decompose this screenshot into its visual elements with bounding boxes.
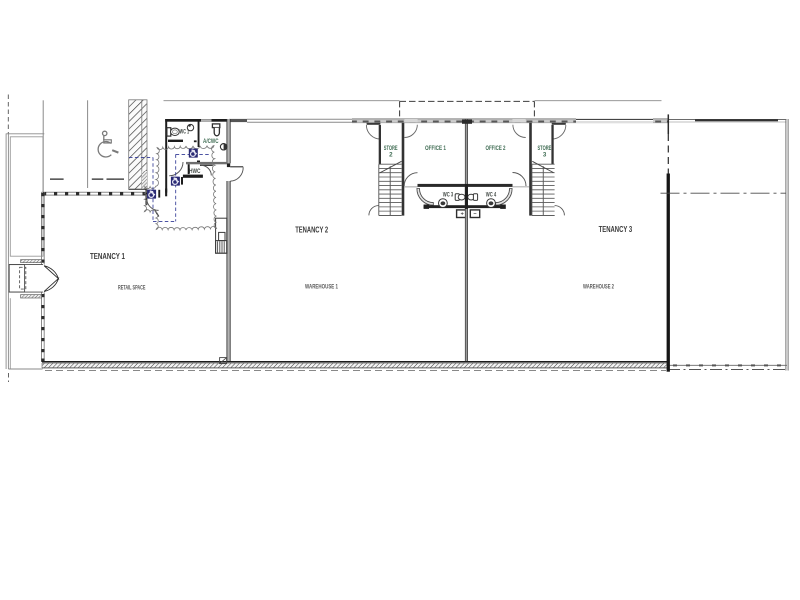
svg-text:WAREHOUSE 1: WAREHOUSE 1 xyxy=(305,284,338,290)
svg-text:WC 4: WC 4 xyxy=(486,192,497,198)
svg-text:TENANCY 2: TENANCY 2 xyxy=(295,226,328,235)
svg-text:TENANCY 3: TENANCY 3 xyxy=(599,225,633,234)
svg-text:OFFICE 2: OFFICE 2 xyxy=(486,145,506,152)
svg-text:2: 2 xyxy=(389,152,393,159)
svg-text:OFFICE 1: OFFICE 1 xyxy=(425,145,446,152)
svg-text:RETAIL SPACE: RETAIL SPACE xyxy=(118,286,146,292)
svg-text:WC 3: WC 3 xyxy=(443,192,454,198)
svg-text:A/CWC: A/CWC xyxy=(203,139,219,145)
svg-text:WC 1: WC 1 xyxy=(180,129,190,135)
svg-text:HWC: HWC xyxy=(189,169,201,175)
svg-text:3: 3 xyxy=(543,152,547,159)
svg-text:WAREHOUSE 2: WAREHOUSE 2 xyxy=(583,285,614,291)
svg-text:TENANCY 1: TENANCY 1 xyxy=(90,252,125,261)
